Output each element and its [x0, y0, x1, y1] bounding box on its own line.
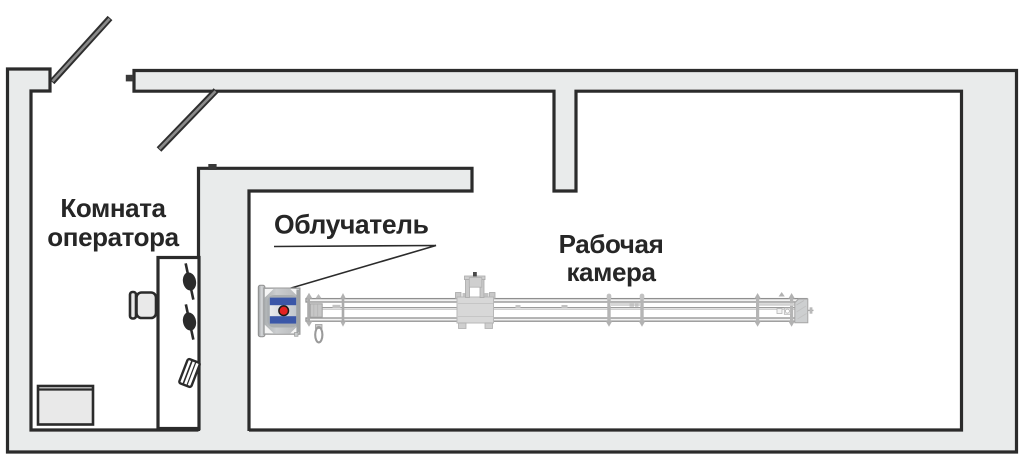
svg-text:оператора: оператора	[47, 222, 179, 252]
svg-text:Облучатель: Облучатель	[274, 210, 429, 240]
svg-text:Комната: Комната	[60, 193, 166, 223]
svg-text:Рабочая: Рабочая	[559, 229, 664, 259]
svg-text:камера: камера	[566, 257, 656, 287]
